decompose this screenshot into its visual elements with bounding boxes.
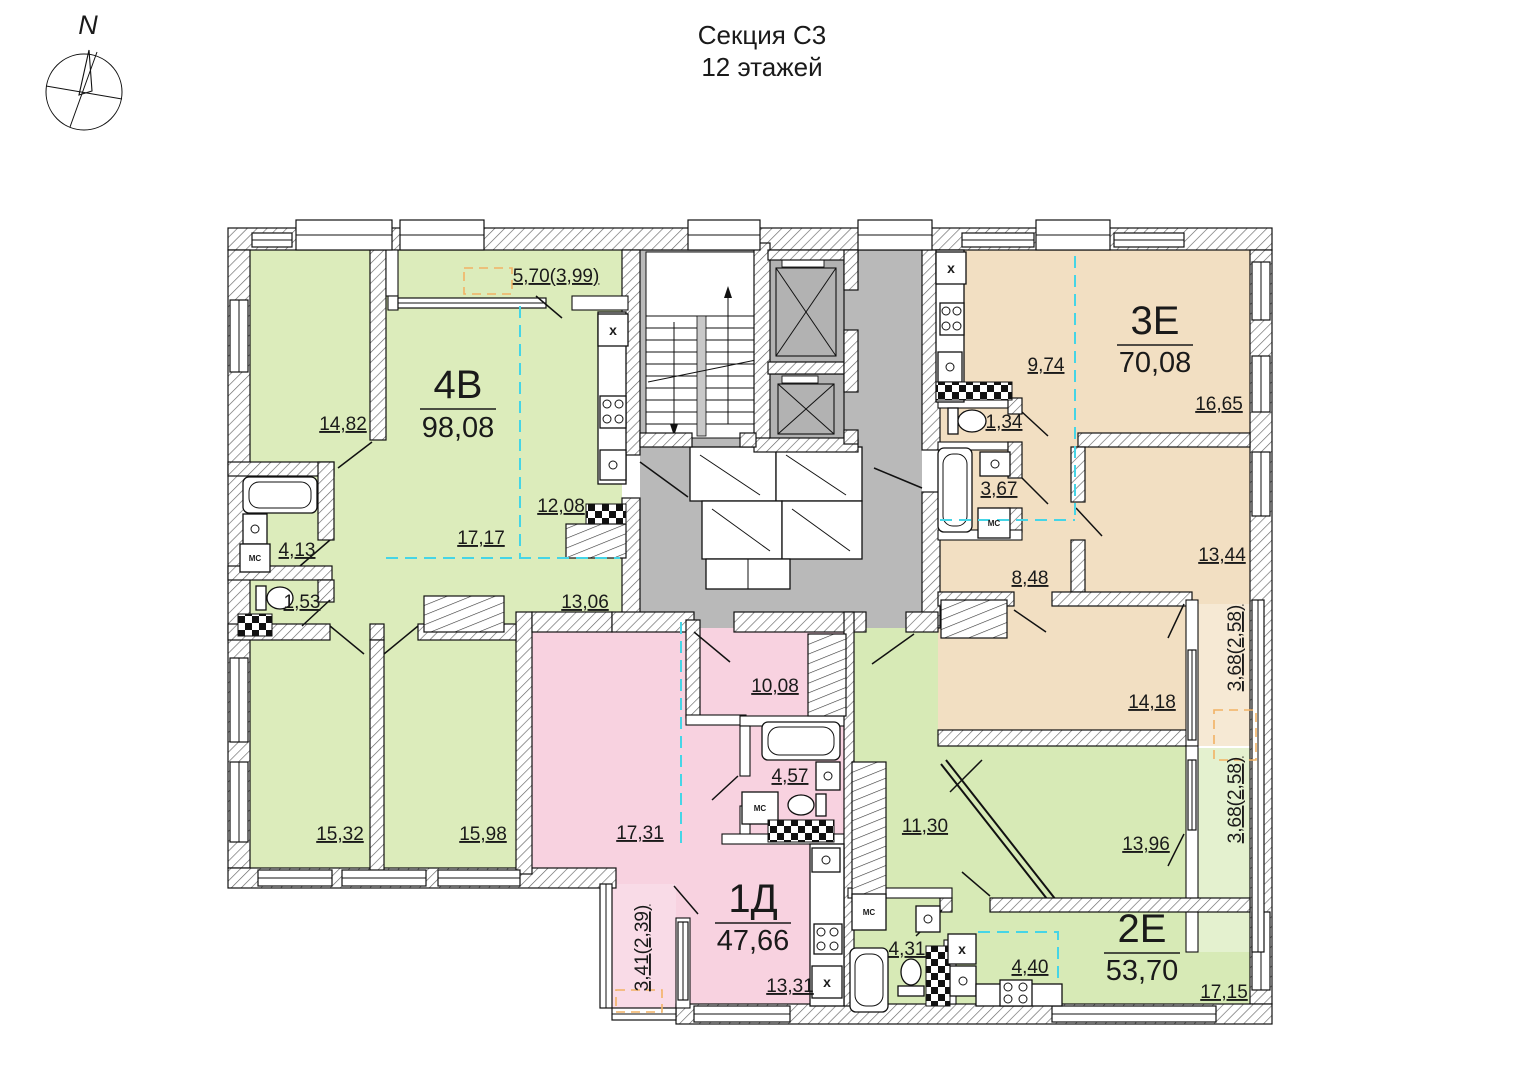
plumbing-shaft-icon <box>768 820 834 842</box>
vent-duct-label: х <box>823 974 831 990</box>
section-title: Секция С3 <box>698 20 827 50</box>
vent-block-icon <box>808 634 846 716</box>
floor-plan-drawing: Секция С3 12 этажей N <box>0 0 1528 1080</box>
sink-icon <box>938 352 962 382</box>
washing-machine-label: МС <box>863 908 876 917</box>
room-area-label: 16,65 <box>1195 394 1243 415</box>
room-area-label: 17,15 <box>1200 982 1248 1003</box>
balcony-area-label: 5,70(3,99) <box>513 266 600 287</box>
plan-title: Секция С3 12 этажей <box>698 20 827 82</box>
apartment-3e-total-area: 70,08 <box>1119 347 1192 379</box>
room-area-label: 4,57 <box>772 766 809 787</box>
elevator-equipment <box>782 376 818 383</box>
sink-icon <box>980 452 1010 476</box>
toilet-icon <box>816 794 826 816</box>
plumbing-shaft-icon <box>926 946 950 1006</box>
plumbing-shaft-icon <box>586 504 626 524</box>
room-area-label: 15,98 <box>459 824 507 845</box>
washing-machine-label: МС <box>249 554 262 563</box>
toilet-icon <box>256 586 266 610</box>
compass-axis-icon <box>70 52 97 127</box>
sink-icon <box>812 848 840 872</box>
balcony-area-label: 3,68(2,58) <box>1225 757 1246 844</box>
room-area-label: 1,34 <box>986 412 1023 433</box>
apartment-3e-code: 3Е <box>1131 299 1180 343</box>
bathtub-icon <box>762 722 840 760</box>
sink-icon <box>243 514 267 544</box>
vent-duct-label: х <box>958 941 966 957</box>
room-area-label: 4,40 <box>1012 957 1049 978</box>
compass-north-label: N <box>78 10 98 40</box>
room-area-label: 4,31 <box>889 939 926 960</box>
apartment-1d-total-area: 47,66 <box>717 925 790 957</box>
room-area-label: 13,31 <box>766 976 814 997</box>
plumbing-shaft-icon <box>238 614 272 636</box>
radiator-icon <box>566 524 626 558</box>
vent-block-icon <box>852 762 886 898</box>
balcony-area-label: 3,41(2,39) <box>632 905 653 992</box>
toilet-icon <box>901 959 921 985</box>
compass-rose: N <box>46 10 122 130</box>
plumbing-shaft-icon <box>936 382 1012 400</box>
sink-icon <box>600 450 626 480</box>
room-area-label: 17,31 <box>616 823 664 844</box>
room-area-label: 11,30 <box>902 816 948 837</box>
sink-icon <box>816 762 840 790</box>
washing-machine-label: МС <box>988 519 1001 528</box>
bathtub-icon <box>850 948 888 1012</box>
room-area-label: 14,82 <box>319 414 367 435</box>
sink-icon <box>916 906 940 932</box>
apartment-1d-code: 1Д <box>728 877 777 921</box>
room-area-label: 1,53 <box>284 592 321 613</box>
room-area-label: 13,96 <box>1122 834 1170 855</box>
sink-icon <box>950 966 976 996</box>
room-area-label: 8,48 <box>1012 568 1049 589</box>
room-area-label: 15,32 <box>316 824 364 845</box>
room-area-label: 17,17 <box>457 528 505 549</box>
room-area-label: 13,06 <box>561 592 609 613</box>
washing-machine-label: МС <box>754 804 767 813</box>
apartment-4v-code: 4В <box>434 363 483 407</box>
apartment-4v-total-area: 98,08 <box>422 412 495 444</box>
toilet-icon <box>948 408 958 434</box>
stair-stringer <box>697 316 706 436</box>
apartment-2e-total-area: 53,70 <box>1106 955 1179 987</box>
room-area-label: 3,67 <box>981 479 1018 500</box>
room-area-label: 4,13 <box>279 540 316 561</box>
room-area-label: 10,08 <box>751 676 799 697</box>
vent-duct-label: х <box>609 322 617 338</box>
floors-subtitle: 12 этажей <box>701 52 822 82</box>
apartment-2e-code: 2Е <box>1118 907 1167 951</box>
room-area-label: 12,08 <box>537 496 585 517</box>
room-area-label: 14,18 <box>1128 692 1176 713</box>
room-area-label: 13,44 <box>1198 545 1246 566</box>
room-area-label: 9,74 <box>1028 355 1065 376</box>
vent-duct-label: х <box>947 260 955 276</box>
balcony-area-label: 3,68(2,58) <box>1225 605 1246 692</box>
radiator-icon <box>424 596 504 632</box>
floor-plan-page: Секция С3 12 этажей N <box>0 0 1528 1080</box>
radiator-icon <box>941 600 1007 638</box>
